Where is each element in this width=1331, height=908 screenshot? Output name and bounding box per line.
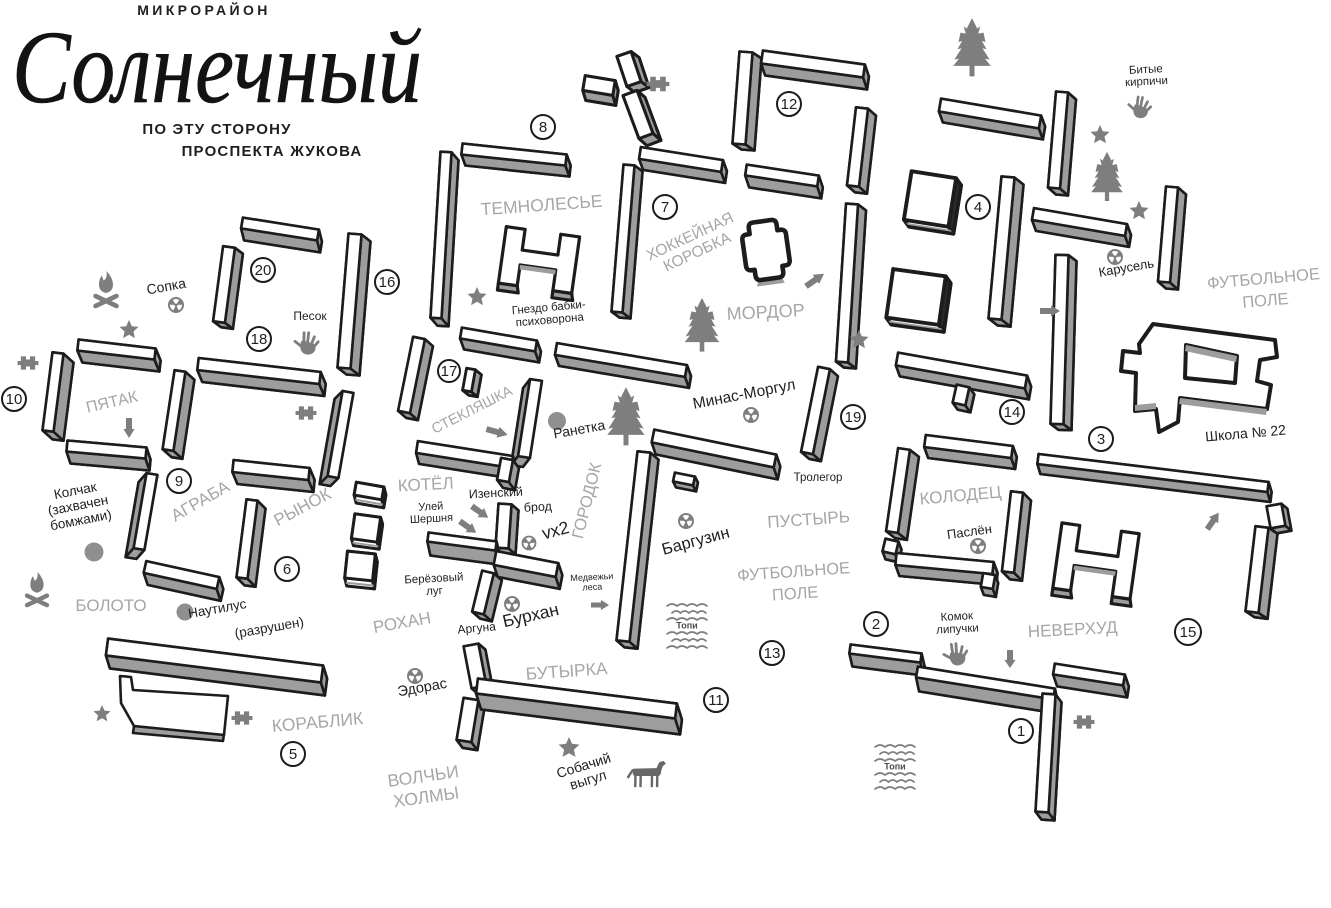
svg-text:4: 4 [974,199,982,216]
svg-text:8: 8 [539,119,547,136]
svg-text:19: 19 [845,409,862,426]
svg-text:кирпичи: кирпичи [1125,75,1168,89]
svg-text:липучки: липучки [936,622,979,636]
svg-text:11: 11 [708,692,724,709]
svg-text:14: 14 [1004,404,1021,421]
svg-text:10: 10 [6,391,23,408]
svg-text:15: 15 [1180,624,1197,641]
svg-text:БОЛОТО: БОЛОТО [75,596,146,615]
svg-text:ПОЛЕ: ПОЛЕ [771,583,818,604]
svg-text:леса: леса [582,581,602,592]
svg-text:брод: брод [523,499,552,514]
svg-text:Комок: Комок [940,610,974,624]
svg-text:2: 2 [872,616,880,633]
svg-text:16: 16 [379,274,396,291]
svg-text:Солнечный: Солнечный [12,10,422,125]
svg-text:Топи: Топи [676,621,697,631]
svg-text:9: 9 [175,473,183,490]
svg-text:18: 18 [251,331,268,348]
svg-text:КОТЁЛ: КОТЁЛ [397,474,454,496]
svg-text:12: 12 [781,96,798,113]
svg-text:1: 1 [1017,723,1025,740]
svg-text:5: 5 [289,746,297,763]
svg-text:луг: луг [426,585,443,598]
svg-text:Топи: Топи [884,762,905,772]
svg-text:Шершня: Шершня [410,512,454,526]
svg-text:МОРДОР: МОРДОР [726,300,805,324]
svg-text:ПРОСПЕКТА ЖУКОВА: ПРОСПЕКТА ЖУКОВА [182,143,363,160]
svg-text:6: 6 [283,561,291,578]
svg-text:20: 20 [255,262,272,279]
svg-text:ПО ЭТУ СТОРОНУ: ПО ЭТУ СТОРОНУ [142,121,291,138]
svg-text:Тролегор: Тролегор [794,472,843,484]
svg-text:3: 3 [1097,431,1105,448]
svg-text:13: 13 [764,645,781,662]
svg-text:Песок: Песок [293,309,327,323]
svg-text:7: 7 [661,199,669,216]
svg-text:Изенский: Изенский [468,485,523,502]
svg-text:17: 17 [441,363,458,380]
